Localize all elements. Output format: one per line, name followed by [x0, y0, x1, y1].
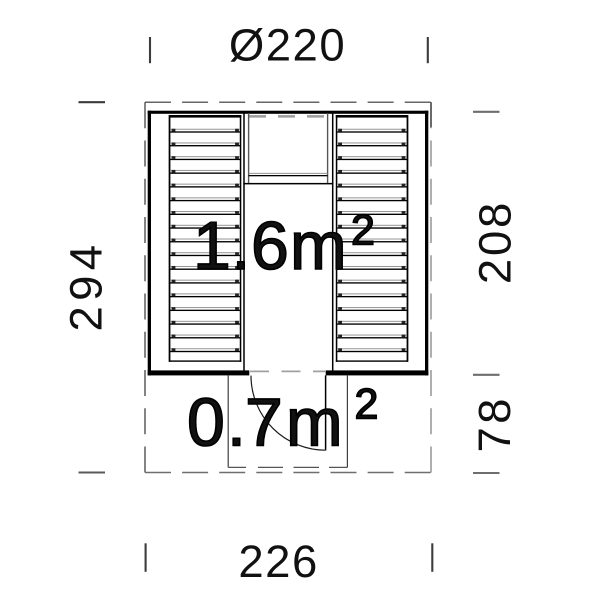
svg-text:208: 208 — [470, 200, 521, 284]
svg-text:294: 294 — [61, 240, 112, 332]
svg-text:226: 226 — [238, 536, 318, 587]
svg-text:Ø220: Ø220 — [229, 20, 346, 71]
svg-text:78: 78 — [469, 395, 520, 452]
